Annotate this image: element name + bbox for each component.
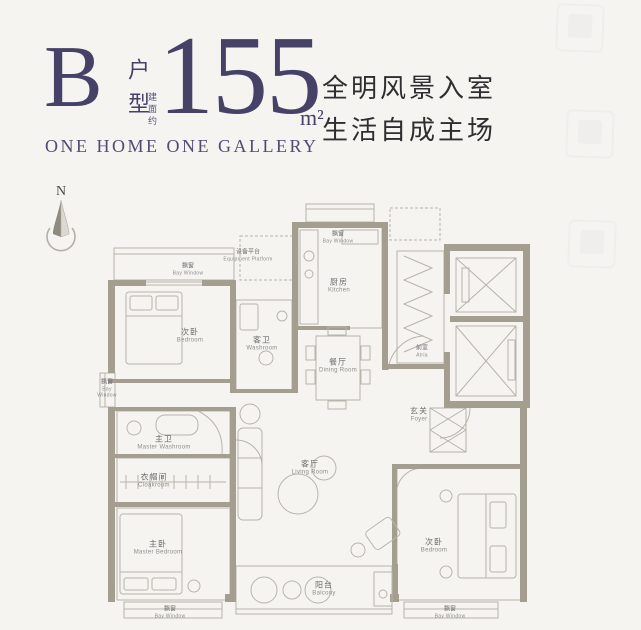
room-name-en: Foyer	[410, 416, 428, 423]
room-label-living-room: 客厅 Living Room	[292, 460, 329, 477]
room-label-balcony: 阳台 Balcony	[312, 581, 335, 598]
room-label-bedroom-right: 次卧 Bedroom	[421, 538, 447, 555]
room-name-en: Bay Window	[173, 271, 204, 277]
room-name-en: Dining Room	[319, 367, 357, 374]
room-label-dining-room: 餐厅 Dining Room	[319, 358, 357, 375]
room-name-en: Living Room	[292, 469, 329, 476]
compass-icon: N	[34, 180, 88, 254]
room-name-en: Master Washroom	[135, 444, 193, 451]
room-name-en: Master Bedroom	[129, 549, 187, 556]
room-name-en: Washroom	[246, 345, 277, 352]
room-name-en: Bay Window	[323, 239, 354, 245]
room-name-zh: 主卧	[129, 540, 187, 550]
bed-right-bedroom	[440, 490, 516, 578]
room-label-bay-window-kitchen: 飘窗 Bay Window	[323, 231, 354, 244]
room-name-zh: 客卫	[246, 336, 277, 346]
washroom-fixtures	[240, 304, 287, 365]
subtitle: ONE HOME ONE GALLERY	[45, 136, 318, 157]
area-unit: m²	[300, 105, 324, 131]
room-label-washroom: 客卫 Washroom	[246, 336, 277, 353]
room-name-zh: 玄关	[410, 407, 428, 417]
room-name-en: Cloakroom	[138, 482, 170, 489]
room-name-zh: 前室	[416, 345, 428, 352]
room-label-cloakroom: 衣帽间 Cloakroom	[138, 473, 170, 490]
room-name-en: Bedroom	[177, 337, 203, 344]
room-name-zh: 次卧	[177, 328, 203, 338]
watermark-icon	[555, 3, 605, 53]
floor-plan: 飘窗 Bay Window 设备平台 Equipment Platform 飘窗…	[92, 196, 537, 626]
room-name-zh: 设备平台	[220, 249, 276, 256]
room-name-en: Bay Window	[155, 614, 186, 620]
compass-north-label: N	[56, 184, 66, 199]
room-name-en: Atria	[416, 353, 428, 359]
room-label-master-bedroom: 主卧 Master Bedroom	[129, 540, 187, 557]
room-name-zh: 飘窗	[323, 231, 354, 238]
room-name-en: Kitchen	[328, 287, 350, 294]
tagline-line-1: 全明风景入室	[322, 68, 496, 110]
room-label-bedroom-top: 次卧 Bedroom	[177, 328, 203, 345]
watermark-icon	[567, 219, 617, 269]
cloakroom-hangers	[120, 475, 226, 489]
room-name-en: Equipment Platform	[220, 257, 276, 263]
room-label-equipment-platform: 设备平台 Equipment Platform	[220, 249, 276, 262]
living-room-furniture	[238, 404, 401, 557]
tagline-line-2: 生活自成主场	[322, 110, 496, 152]
floor-plan-drawing	[92, 196, 537, 626]
floor-plan-page: B 户型 建面约 155 m² ONE HOME ONE GALLERY 全明风…	[0, 0, 641, 630]
room-name-zh: 厨房	[328, 278, 350, 288]
room-label-bay-window-left: 飘窗 Bay Window	[94, 379, 120, 398]
room-name-zh: 阳台	[312, 581, 335, 591]
room-name-en: Bay Window	[435, 614, 466, 620]
room-label-bay-window-top-left: 飘窗 Bay Window	[173, 263, 204, 276]
bed-top-bedroom	[126, 292, 182, 364]
room-name-zh: 飘窗	[94, 379, 120, 386]
room-name-en: Balcony	[312, 590, 335, 597]
room-name-zh: 飘窗	[435, 606, 466, 613]
room-label-kitchen: 厨房 Kitchen	[328, 278, 350, 295]
header: B 户型 建面约 155 m² ONE HOME ONE GALLERY 全明风…	[0, 0, 641, 175]
room-name-zh: 餐厅	[319, 358, 357, 368]
room-name-zh: 客厅	[292, 460, 329, 470]
watermark-icon	[565, 109, 615, 159]
room-name-zh: 次卧	[421, 538, 447, 548]
room-label-atria: 前室 Atria	[416, 345, 428, 358]
room-label-bay-window-bottom-right: 飘窗 Bay Window	[435, 606, 466, 619]
room-name-zh: 飘窗	[173, 263, 204, 270]
room-name-en: Bay Window	[94, 387, 120, 399]
compass-needle-dark	[53, 200, 61, 237]
tagline: 全明风景入室 生活自成主场	[322, 68, 496, 152]
room-name-en: Bedroom	[421, 547, 447, 554]
area-value: 155	[158, 18, 320, 136]
room-name-zh: 飘窗	[155, 606, 186, 613]
room-label-master-washroom: 主卫 Master Washroom	[135, 435, 193, 452]
plan-letter: B	[44, 30, 103, 127]
room-name-zh: 主卫	[135, 435, 193, 445]
room-label-foyer: 玄关 Foyer	[410, 407, 428, 424]
room-label-bay-window-bottom-left: 飘窗 Bay Window	[155, 606, 186, 619]
room-name-zh: 衣帽间	[138, 473, 170, 483]
compass-needle-light	[61, 200, 69, 237]
